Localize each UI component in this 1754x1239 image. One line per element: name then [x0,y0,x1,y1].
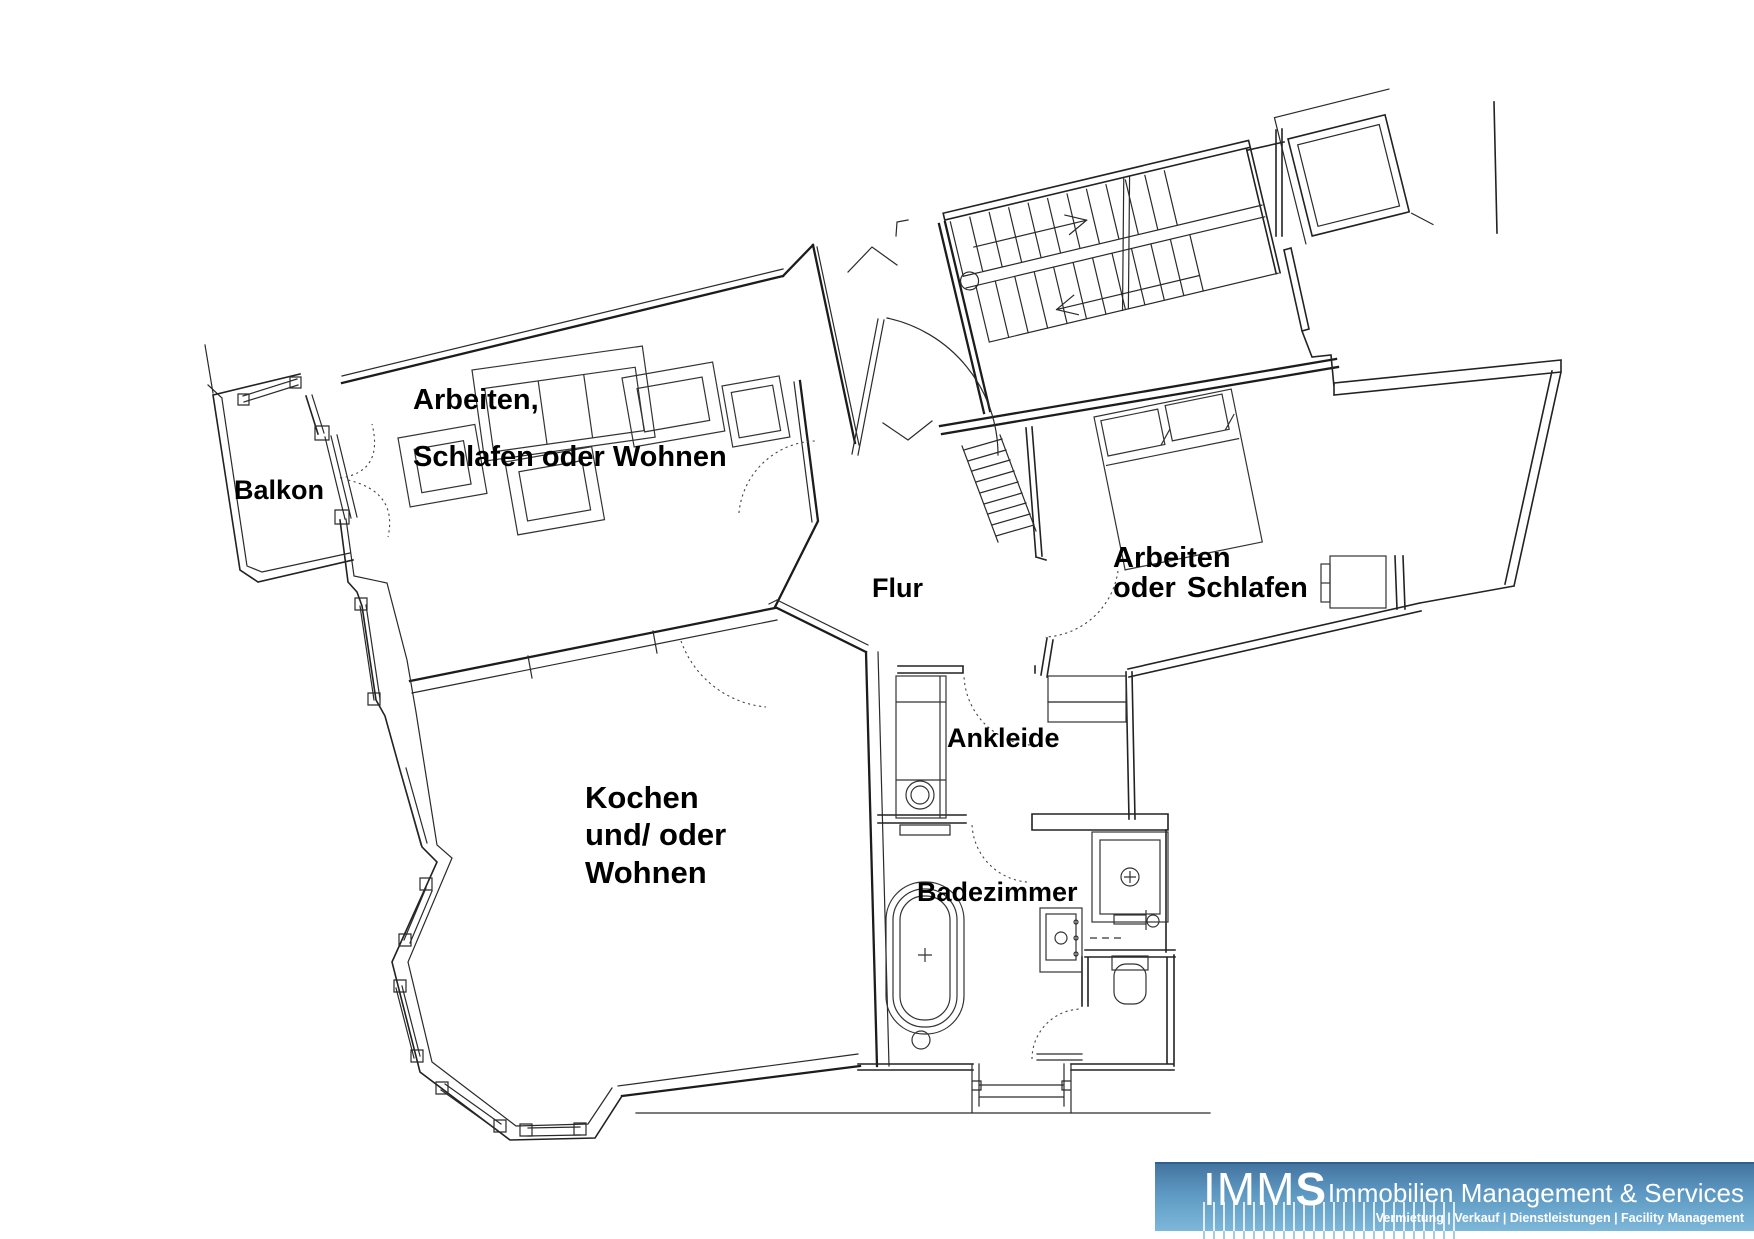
room-label-right-line2b: Schlafen [1187,572,1308,604]
shelf-unit [1048,676,1126,702]
balcony-outline [205,345,353,582]
shower-icon [1090,832,1168,938]
elevator-outer [1288,115,1409,236]
side-table [722,376,790,447]
ankleide-sill [900,825,950,835]
logo-banner: IMMS Immobilien Management & Services Ve… [1155,1162,1754,1231]
company-services: Vermietung | Verkauf | Dienstleistungen … [1376,1211,1744,1225]
staircase-arrow-up [971,210,1088,256]
exterior-wall [342,245,877,1096]
west-facade-outer [306,396,622,1140]
bathroom-door-leaf [1037,1054,1082,1060]
kitchen-door-swing [681,641,766,707]
wall-offset-lines [342,220,908,1086]
room-label-top-line2: Schlafen oder Wohnen [413,441,727,473]
room-label-ankleide: Ankleide [947,723,1060,753]
floorplan-drawing: Balkon Arbeiten, Schlafen oder Wohnen Fl… [0,0,1754,1239]
bathroom-window [972,1064,1071,1112]
sofa-small [622,362,725,447]
livingroom-door-swing [739,441,815,513]
window-icon [355,598,586,1136]
floorplan-page: Balkon Arbeiten, Schlafen oder Wohnen Fl… [0,0,1754,1239]
door-swings [340,318,1118,1060]
bathroom-walls [858,830,1175,1070]
staircase-steps-lower [966,217,1278,345]
room-label-top-line1: Arbeiten, [413,384,539,416]
walls [205,102,1561,1140]
room-label-flur: Flur [872,573,923,603]
room-label-kitchen-line1: Kochen [585,780,699,815]
balcony-door-swing-lower [348,480,390,537]
ankleide-bath-door-swing [972,822,1027,882]
staircase [943,140,1280,345]
desk [1321,556,1386,608]
room-labels: Balkon Arbeiten, Schlafen oder Wohnen Fl… [234,384,1308,907]
elevator-shaft [1274,87,1433,256]
company-name: Immobilien Management & Services [1328,1178,1744,1209]
washing-machine-icon [906,781,934,809]
room-label-kitchen-line2: und/ oder [585,817,726,852]
room-label-kitchen-line3: Wohnen [585,855,707,890]
sink-vanity-icon [1040,908,1082,972]
elevator-inner [1298,125,1400,227]
radiator-icon [962,435,1036,542]
wardrobe [896,676,946,818]
bedroom-west-wall [1026,427,1053,677]
room-label-balkon: Balkon [234,475,324,505]
staircase-outer [943,140,1280,345]
room-label-badezimmer: Badezimmer [917,877,1078,907]
toilet-icon [1112,956,1148,1004]
west-facade-inner [312,395,612,1126]
room-label-right-line2a: oder [1113,572,1176,604]
bedroom-door-swing [1045,571,1118,637]
elevator-frame [1274,87,1433,256]
room-label-right-line1: Arbeiten [1113,542,1231,574]
staircase-steps-upper [950,151,1262,277]
bathroom-fixtures [886,832,1168,1049]
barcode-lines-below-icon [1203,1231,1461,1239]
bathroom-door-swing [1032,1009,1080,1059]
